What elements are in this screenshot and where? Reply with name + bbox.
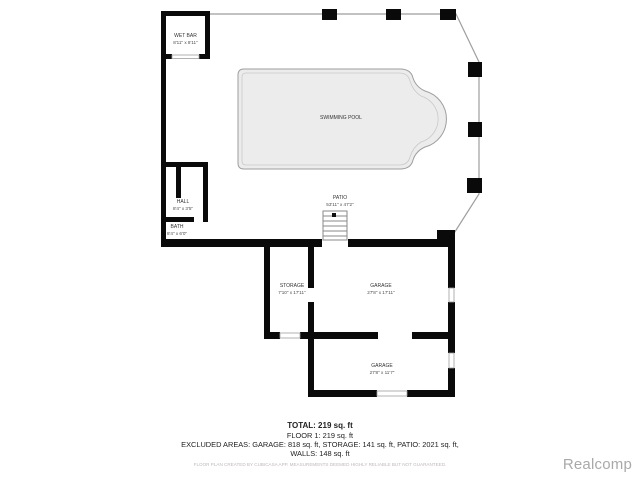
garage-lower-name: GARAGE xyxy=(353,363,411,370)
swimming-pool-name: SWIMMING POOL xyxy=(281,115,401,122)
area-summary: TOTAL: 219 sq. ft FLOOR 1: 219 sq. ft EX… xyxy=(0,421,640,467)
summary-excluded-areas: EXCLUDED AREAS: GARAGE: 818 sq. ft, STOR… xyxy=(0,440,640,449)
bath-name: BATH xyxy=(155,224,199,231)
summary-disclaimer: FLOOR PLAN CREATED BY CUBICASA APP. MEAS… xyxy=(0,462,640,468)
realcomp-watermark: Realcomp xyxy=(563,456,632,473)
room-label-hall: HALL 8'4" x 3'5" xyxy=(161,199,205,212)
floorplan-drawing xyxy=(0,0,640,480)
hall-name: HALL xyxy=(161,199,205,206)
room-label-garage-upper: GARAGE 27'8" x 17'11" xyxy=(352,283,410,296)
summary-total: TOTAL: 219 sq. ft xyxy=(0,421,640,431)
summary-floor1: FLOOR 1: 219 sq. ft xyxy=(0,431,640,440)
patio-name: PATIO xyxy=(309,195,371,202)
room-label-patio: PATIO 53'11" x 47'2" xyxy=(309,195,371,208)
garage-upper-dims: 27'8" x 17'11" xyxy=(352,290,410,296)
room-label-wet-bar: WET BAR 8'11" x 8'11" xyxy=(163,33,208,46)
garage-upper-name: GARAGE xyxy=(352,283,410,290)
staircase xyxy=(323,211,347,240)
bath-dims: 8'4" x 6'0" xyxy=(155,231,199,237)
storage-name: STORAGE xyxy=(269,283,315,290)
room-label-storage: STORAGE 7'10" x 17'11" xyxy=(269,283,315,296)
patio-dims: 53'11" x 47'2" xyxy=(309,202,371,208)
storage-dims: 7'10" x 17'11" xyxy=(269,290,315,296)
summary-walls: WALLS: 148 sq. ft xyxy=(0,449,640,458)
floorplan-page: WET BAR 8'11" x 8'11" SWIMMING POOL PATI… xyxy=(0,0,640,480)
room-label-garage-lower: GARAGE 27'8" x 11'7" xyxy=(353,363,411,376)
room-label-bath: BATH 8'4" x 6'0" xyxy=(155,224,199,237)
hall-dims: 8'4" x 3'5" xyxy=(161,206,205,212)
room-label-swimming-pool: SWIMMING POOL xyxy=(281,115,401,122)
garage-lower-dims: 27'8" x 11'7" xyxy=(353,370,411,376)
wet-bar-dims: 8'11" x 8'11" xyxy=(163,40,208,46)
wet-bar-name: WET BAR xyxy=(163,33,208,40)
